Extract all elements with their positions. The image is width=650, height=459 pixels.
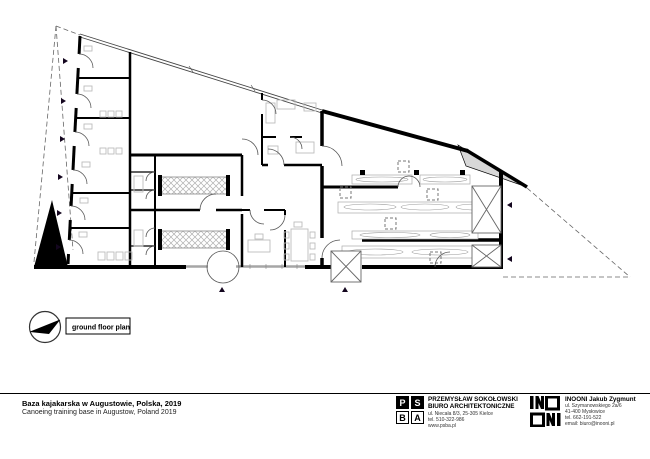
psba-logo-letter-b: B	[396, 411, 409, 424]
inooni-name: INOONI Jakub Zygmunt	[565, 396, 636, 403]
project-title-en: Canoeing training base in Augustow, Pola…	[22, 408, 181, 417]
hatched-benches	[158, 175, 230, 250]
drawing-sheet: ground floor plan Baza kajakarska w Augu…	[0, 0, 650, 459]
site-boundary-dashed	[34, 26, 630, 277]
plan-label-box: ground floor plan	[66, 318, 130, 334]
psba-website: www.psba.pl	[428, 423, 518, 429]
psba-logo-letter-p: P	[396, 396, 409, 409]
psba-logo: P S B A	[396, 396, 424, 429]
plan-label: ground floor plan	[72, 325, 130, 332]
hall-columns-solid	[360, 170, 465, 175]
inooni-logo	[530, 396, 561, 427]
psba-logo-letter-a: A	[411, 411, 424, 424]
floor-plan-drawing: ground floor plan	[0, 0, 650, 392]
psba-logo-letter-s: S	[411, 396, 424, 409]
psba-name-line2: BIURO ARCHITEKTONICZNE	[428, 403, 518, 410]
inooni-email: email: biuro@inooni.pl	[565, 421, 636, 427]
inooni-office-block: INOONI Jakub Zygmunt ul. Szymanowskiego …	[530, 396, 636, 427]
psba-office-block: P S B A PRZEMYSŁAW SOKOŁOWSKI BIURO ARCH…	[396, 396, 518, 429]
psba-text: PRZEMYSŁAW SOKOŁOWSKI BIURO ARCHITEKTONI…	[428, 396, 518, 429]
project-title-block: Baza kajakarska w Augustowie, Polska, 20…	[22, 399, 181, 417]
north-arrow-icon	[30, 312, 61, 343]
inooni-text: INOONI Jakub Zygmunt ul. Szymanowskiego …	[565, 396, 636, 427]
psba-name-line1: PRZEMYSŁAW SOKOŁOWSKI	[428, 396, 518, 403]
project-title-pl: Baza kajakarska w Augustowie, Polska, 20…	[22, 399, 181, 408]
entrance-opening	[208, 263, 236, 270]
footer-divider	[0, 393, 650, 394]
glass-facade-diagonal	[80, 34, 322, 113]
